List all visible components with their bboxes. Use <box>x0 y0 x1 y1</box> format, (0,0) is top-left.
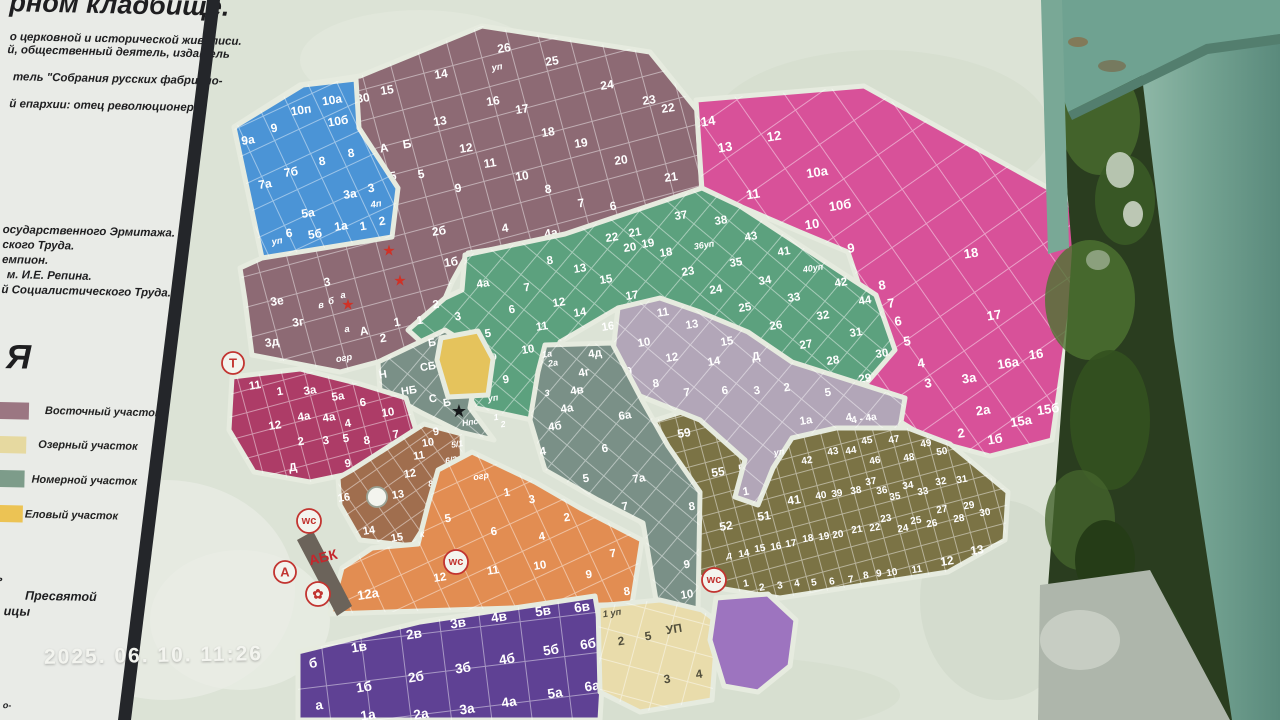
map-cell-label: 41 <box>786 492 802 508</box>
map-cell-label: 30 <box>875 347 890 361</box>
map-cell-label: 12 <box>552 296 567 310</box>
map-cell-label: 15 <box>754 543 767 556</box>
map-section-lake-yellow <box>437 331 493 397</box>
map-cell-label: 5а <box>331 390 346 404</box>
map-cell-label: 59 <box>676 425 692 441</box>
map-cell-label: 23 <box>880 513 893 526</box>
map-cell-label: 1б <box>443 254 459 270</box>
legend-swatch <box>0 436 26 454</box>
foliage-blob <box>1123 201 1143 227</box>
map-cell-label: 18 <box>540 124 556 140</box>
map-cell-label: 3а <box>458 700 476 717</box>
map-cell-label: УП <box>665 621 683 637</box>
map-cell-label: 3б <box>454 659 472 676</box>
map-cell-label: 3а <box>303 384 318 398</box>
map-cell-label: 10 <box>514 168 530 184</box>
map-cell-label: 11 <box>412 449 425 463</box>
red-star-icon: ★ <box>341 297 354 314</box>
toilet-marker-label: wc <box>706 574 722 586</box>
map-cell-label: 42 <box>801 455 814 468</box>
map-cell-label: уп <box>270 235 284 247</box>
map-cell-label: 15 <box>390 531 404 545</box>
foliage-blob <box>1106 152 1134 188</box>
map-cell-label: 6а <box>618 409 633 423</box>
map-cell-label: 3а <box>342 186 358 202</box>
map-cell-label: 19 <box>641 237 656 251</box>
map-cell-label: 25 <box>544 53 560 69</box>
map-cell-label: 5б <box>542 641 560 658</box>
legend-label: Озерный участок <box>38 439 139 453</box>
map-cell-label: 2а <box>412 705 430 720</box>
map-cell-label: 15 <box>599 273 614 287</box>
panel-text-line: ицы <box>4 604 31 619</box>
map-cell-label: 13 <box>717 138 734 155</box>
map-cell-label: 20 <box>623 241 638 255</box>
map-cell-label: 18 <box>659 246 674 260</box>
map-cell-label: 13 <box>432 113 448 129</box>
map-cell-label: 10 <box>381 406 396 420</box>
map-cell-label: 12 <box>458 140 474 156</box>
map-cell-label: 24 <box>599 77 615 93</box>
map-cell-label: 4а <box>297 410 312 424</box>
map-cell-label: 13 <box>685 318 700 332</box>
map-cell-label: 12 <box>766 127 783 144</box>
map-cell-label: 23 <box>681 265 696 279</box>
map-cell-label: 16 <box>485 93 501 109</box>
map-cell-label: 15 <box>379 82 395 98</box>
map-cell-label: 2а <box>546 357 558 369</box>
map-cell-label: уп <box>490 61 504 73</box>
map-cell-label: 5а <box>546 684 564 701</box>
map-cell-label: 44 <box>845 445 858 458</box>
map-cell-label: 1а <box>799 414 814 428</box>
map-cell-label: 33 <box>787 291 802 305</box>
map-cell-label: 25 <box>910 515 923 528</box>
legend-swatch <box>0 505 23 523</box>
map-cell-label: 17 <box>986 306 1003 323</box>
rust-spot <box>1068 37 1088 47</box>
map-cell-label: 13 <box>969 542 985 558</box>
map-cell-label: 7б <box>283 164 299 180</box>
map-cell-label: 11 <box>483 155 498 171</box>
map-cell-label: 4п <box>369 198 383 210</box>
map-cell-label: 43 <box>827 446 840 459</box>
map-cell-label: 36 <box>876 485 889 498</box>
map-cell-label: 16 <box>770 541 783 554</box>
map-cell-label: 5б <box>307 226 323 242</box>
map-cell-label: 4г <box>578 366 591 380</box>
map-cell-label: 12 <box>665 351 680 365</box>
red-star-icon: ★ <box>382 243 395 260</box>
cemetery-map-sign-photo: 30151426уп2524232213АБ161718192021121110… <box>0 0 1280 720</box>
bus-stop-marker-label: А <box>280 565 290 580</box>
map-cell-label: 21 <box>663 169 679 185</box>
map-cell-label: 42 <box>834 276 849 290</box>
map-cell-label: 19 <box>573 135 589 151</box>
map-cell-label: 45 <box>861 435 874 448</box>
map-cell-label: 12 <box>433 571 448 585</box>
map-cell-label: 9а <box>240 132 256 148</box>
map-cell-label: 17 <box>625 289 640 303</box>
map-cell-label: 30 <box>979 507 992 520</box>
map-cell-label: 51 <box>756 508 772 524</box>
map-cell-label: 31 <box>956 474 969 487</box>
map-cell-label: 3г <box>291 314 305 330</box>
toilet-marker-label: wc <box>301 515 317 527</box>
map-cell-label: 34 <box>758 274 773 288</box>
map-cell-label: 52 <box>718 518 734 534</box>
map-cell-label: 24 <box>709 283 724 297</box>
fountain-marker <box>367 487 387 507</box>
map-cell-label: 2в <box>405 625 423 642</box>
map-cell-label: 1в <box>350 638 368 655</box>
map-cell-label: 2б <box>431 223 447 239</box>
map-cell-label: 14 <box>573 306 588 320</box>
panel-text-line: Пресвятой <box>25 589 97 605</box>
map-cell-label: 4б <box>547 420 562 434</box>
map-cell-label: 4а <box>476 277 491 291</box>
map-cell-label: 10 <box>521 343 536 357</box>
map-cell-label: 37 <box>674 209 689 223</box>
map-cell-label: 49 <box>920 438 933 451</box>
map-cell-label: 20 <box>832 529 845 542</box>
map-cell-label: 24 <box>897 523 910 536</box>
map-cell-label: 21 <box>851 524 864 537</box>
map-cell-label: 3в <box>449 614 467 631</box>
map-cell-label: 46 <box>869 455 882 468</box>
map-cell-label: 26 <box>496 40 512 56</box>
map-cell-label: 5/1 <box>450 438 464 450</box>
map-cell-label: 3е <box>269 293 285 309</box>
wall-highlight <box>1040 610 1120 670</box>
map-cell-label: 47 <box>888 434 901 447</box>
legend-label: Еловый участок <box>25 509 120 523</box>
map-cell-label: 1а <box>333 218 349 234</box>
foliage-blob <box>1086 250 1110 270</box>
panel-text-line: ь <box>0 572 3 584</box>
map-cell-label: 40 <box>815 490 828 503</box>
map-cell-label: 1а <box>359 706 377 720</box>
map-cell-label: 31 <box>849 326 864 340</box>
map-cell-label: 11 <box>656 306 670 320</box>
map-cell-label: 10 <box>533 559 548 573</box>
map-cell-label: 4д <box>587 347 603 361</box>
map-cell-label: 17 <box>785 538 798 551</box>
map-cell-label: 27 <box>936 504 949 517</box>
map-cell-label: 18 <box>963 244 980 261</box>
map-cell-label: 39 <box>831 488 844 501</box>
map-cell-label: 4б <box>498 650 516 667</box>
black-star-icon: ★ <box>451 401 467 421</box>
legend-label: Номерной участок <box>31 474 138 488</box>
map-cell-label: 16 <box>337 491 351 505</box>
map-cell-label: 11 <box>248 379 262 393</box>
map-cell-label: 4а <box>322 411 337 425</box>
map-cell-label: 4а <box>500 693 518 710</box>
map-cell-label: 35 <box>729 256 744 270</box>
panel-text-line: м. И.Е. Репина. <box>7 269 92 283</box>
panel-text-line: емпион. <box>2 254 48 267</box>
map-cell-label: 41 <box>777 245 792 259</box>
map-cell-label: 22 <box>869 522 882 535</box>
map-cell-label: 1б <box>355 678 373 695</box>
legend-label: Восточный участок <box>45 405 162 419</box>
map-cell-label: 2б <box>407 668 425 685</box>
map-cell-label: 4а <box>560 402 575 416</box>
map-cell-label: 10 <box>637 336 652 350</box>
camera-timestamp: 2025. 06. 10. 11:26 <box>44 642 263 670</box>
panel-text-line: о- <box>3 700 12 710</box>
map-cell-label: 50 <box>936 446 949 459</box>
map-cell-label: 1б <box>986 430 1003 447</box>
map-cell-label: 22 <box>660 100 676 116</box>
map-cell-label: 22 <box>605 231 620 245</box>
map-cell-label: 35 <box>889 491 902 504</box>
map-cell-label: 38 <box>714 214 729 228</box>
map-cell-label: 11 <box>535 320 549 334</box>
map-cell-label: 14 <box>433 66 449 82</box>
map-cell-label: 26 <box>769 319 784 333</box>
transport-stop-marker-label: Т <box>229 356 237 371</box>
map-cell-label: 4в <box>490 608 508 625</box>
red-star-icon: ★ <box>393 273 406 290</box>
map-cell-label: 55 <box>710 464 726 480</box>
map-cell-label: 10 <box>886 567 899 580</box>
map-cell-label: уп <box>772 446 785 458</box>
map-cell-label: 3д <box>264 334 281 350</box>
map-cell-label: 20 <box>613 152 629 168</box>
map-cell-label: 6в <box>573 598 591 615</box>
map-cell-label: СБ <box>419 360 437 374</box>
map-cell-label: 28 <box>953 513 966 526</box>
map-cell-label: 48 <box>903 452 916 465</box>
map-cell-label: 32 <box>816 309 831 323</box>
map-cell-label: 6б <box>579 635 597 652</box>
map-cell-label: 18 <box>802 533 815 546</box>
map-cell-label: 11 <box>486 564 500 578</box>
legend-swatch <box>0 470 25 488</box>
map-cell-label: 11 <box>745 186 761 203</box>
map-cell-label: 14 <box>707 355 722 369</box>
map-cell-label: 21 <box>628 226 643 240</box>
rust-spot <box>1098 60 1126 72</box>
map-cell-label: 19 <box>818 531 831 544</box>
map-cell-label: 28 <box>826 354 841 368</box>
map-cell-label: 17 <box>514 101 530 117</box>
map-cell-label: 12 <box>939 553 955 569</box>
map-cell-label: 16 <box>1028 345 1045 362</box>
flower-shop-marker-label: ✿ <box>313 587 324 602</box>
map-cell-label: 23 <box>641 92 657 108</box>
map-cell-label: 4в <box>569 384 584 398</box>
map-cell-label: 25 <box>738 301 753 315</box>
panel-text-line: Я <box>5 338 33 377</box>
map-cell-label: 27 <box>799 338 814 352</box>
map-cell-label: 33 <box>917 486 930 499</box>
map-cell-label: 5в <box>534 602 552 619</box>
map-cell-label: 44 <box>858 294 873 308</box>
map-cell-label: 5а <box>300 205 316 221</box>
map-cell-label: 7а <box>632 472 647 486</box>
map-cell-label: 34 <box>902 480 915 493</box>
legend-swatch <box>0 402 29 420</box>
map-cell-label: 38 <box>850 485 863 498</box>
map-cell-label: 26 <box>926 518 939 531</box>
map-cell-label: 15 <box>720 335 735 349</box>
map-cell-label: 29 <box>963 500 976 513</box>
foliage-blob <box>1070 350 1150 490</box>
map-cell-label: 12 <box>403 467 417 481</box>
map-cell-label: 7а <box>257 176 273 192</box>
map-cell-label: 10 <box>680 588 695 602</box>
panel-text-line: ского Труда. <box>2 239 74 253</box>
map-cell-label: 43 <box>744 230 759 244</box>
map-cell-label: 12 <box>268 419 283 433</box>
map-cell-label: 13 <box>573 262 588 276</box>
toilet-marker-label: wc <box>448 556 464 568</box>
map-cell-label: 32 <box>935 476 948 489</box>
map-cell-label: 14 <box>738 548 751 561</box>
map-cell-label: 11 <box>911 564 924 577</box>
map-cell-label: 13 <box>391 488 405 502</box>
map-cell-label: 10 <box>804 215 821 232</box>
map-cell-label: 10 <box>421 436 435 450</box>
map-canvas: 30151426уп2524232213АБ161718192021121110… <box>0 0 1280 720</box>
